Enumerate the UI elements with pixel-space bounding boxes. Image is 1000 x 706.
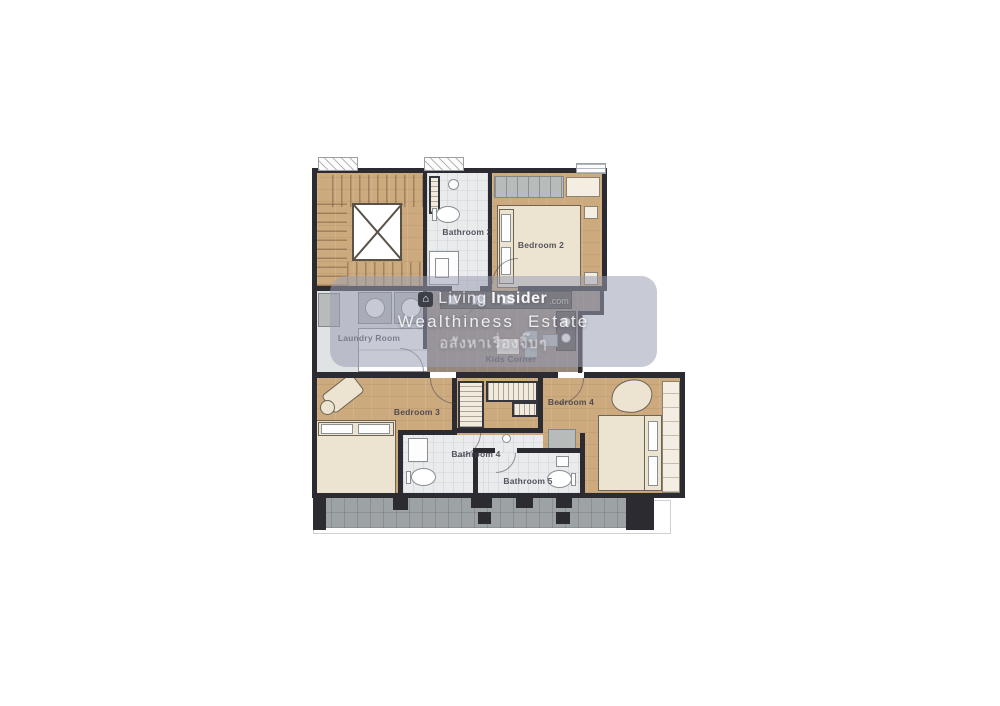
bathroom4-toilet [411,468,436,486]
bathroom3-toilet-tank [432,208,437,221]
wall-segment [312,291,317,378]
wall-segment [580,433,585,497]
bedroom4-pillow [648,456,658,486]
bedroom4-bed [598,415,646,491]
bathroom5-toilet-tank [571,473,576,486]
balcony-post [556,512,570,524]
balcony-post [556,493,572,508]
bedroom3-pillow [321,424,353,434]
watermark-brand-insider: Insider [491,290,547,308]
watermark-thai-line: อสังหาเรื่องจิ๊บๆ [330,334,657,352]
closet-unit [512,402,538,417]
balcony-post [393,493,408,510]
bedroom4-pillow [648,421,658,451]
closet-unit [458,381,484,429]
room-label-bathroom4: Bathroom 4 [451,450,500,459]
room-label-bathroom3: Bathroom 3 [442,228,491,237]
bedroom2-bench [566,177,600,197]
room-label-bedroom2: Bedroom 2 [518,241,564,250]
balcony-post [478,512,491,524]
balcony-post [516,493,533,508]
stair-treads-left [317,200,347,286]
room-label-bedroom3: Bedroom 3 [394,408,440,417]
wall-segment [517,448,585,453]
wall-segment [680,372,685,498]
room-label-bathroom5: Bathroom 5 [503,477,552,486]
wall-segment [398,430,403,493]
watermark-brand-suffix: .com [549,296,569,306]
watermark-overlay: ⌂ Living Insider .com Wealthiness Estate… [330,276,657,367]
balcony-post [626,493,654,530]
bathroom4-vanity [408,438,428,462]
bathroom3-sink [448,179,459,190]
bathroom3-vanity-basin [435,258,449,278]
closet-unit [486,381,538,402]
watermark-brand-row: ⌂ Living Insider .com [330,290,657,308]
wall-segment [312,168,317,290]
wall-segment [312,372,317,498]
hall-sink [502,434,511,443]
ac-unit [424,157,464,171]
bedroom3-pillow [358,424,390,434]
wall-segment [423,173,427,286]
balcony-post [313,493,326,530]
wall-segment [584,372,685,378]
bedroom2-pillow [501,214,511,242]
shelf-unit [576,163,606,174]
bathroom5-sink [556,456,569,467]
bedroom2-nightstand [584,206,598,219]
watermark-brand-living: Living [438,290,487,308]
wall-segment [538,378,543,433]
bathroom5-vanity [548,429,576,449]
balcony-post [471,493,492,508]
watermark-estate-line: Wealthiness Estate [330,312,657,332]
wall-segment [602,168,607,290]
bedroom2-wardrobe [494,176,564,198]
bathroom4-toilet-tank [406,471,411,484]
house-logo-icon: ⌂ [418,292,433,307]
bedroom4-wardrobe [662,381,680,493]
wall-segment [398,430,457,435]
ac-unit [318,157,358,171]
room-label-bedroom4: Bedroom 4 [548,398,594,407]
bedroom3-chair [320,400,335,415]
bathroom3-toilet [436,206,460,223]
wall-segment [312,372,430,378]
floorplan-image: Bathroom 3 Bedroom 2 Laundry Room Kids C… [0,0,1000,706]
